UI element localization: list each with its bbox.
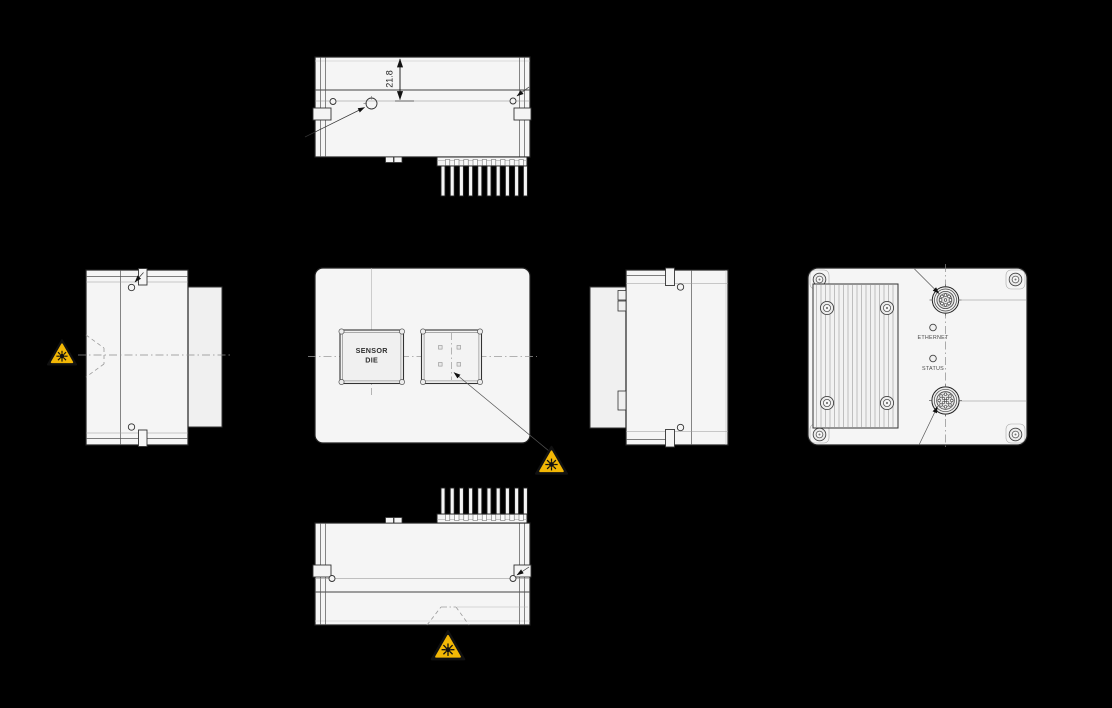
heatsink-base [437,514,527,523]
mounting-hole [677,424,683,430]
ethernet-led-label: ETHERNET [917,335,949,341]
right-view-body [626,270,728,445]
top-view: 21.8 [305,57,531,196]
sensor-die-label-line1: SENSOR [356,346,389,355]
dimension-label: 21.8 [385,70,395,88]
laser-warning-icon [432,631,464,659]
mounting-hole [128,424,134,430]
laser-warning-icon [536,447,567,474]
mounting-hole [677,284,683,290]
bottom-view-body [315,523,530,625]
back-heatsink [813,284,898,428]
right-side-view [590,268,728,447]
sensor-die-label-line2: DIE [365,356,378,365]
mounting-hole [329,576,335,582]
bottom-view [313,488,531,659]
back-view: ETHERNET STATUS [808,264,1027,449]
heatsink-fins [441,488,527,514]
status-led-label: STATUS [922,366,944,372]
emitter-window [420,329,482,385]
top-view-body [315,57,530,157]
laser-warning-icon [48,340,76,364]
heatsink-base [437,157,527,166]
heatsink-fins [441,166,527,196]
mounting-hole [128,284,134,290]
mounting-hole [510,98,516,104]
mounting-hole [510,576,516,582]
mounting-hole [330,99,336,105]
multiview-technical-drawing: 21.8 [0,0,1112,708]
left-side-view [48,269,230,447]
technical-drawing-canvas: 21.8 [0,0,1112,708]
sensor-die-window: SENSOR DIE [339,329,405,385]
left-view-body [86,270,188,445]
left-view-back-panel [188,287,222,427]
front-view: SENSOR DIE [308,268,567,474]
connector-stub [386,157,403,163]
connector-stub [386,518,403,524]
